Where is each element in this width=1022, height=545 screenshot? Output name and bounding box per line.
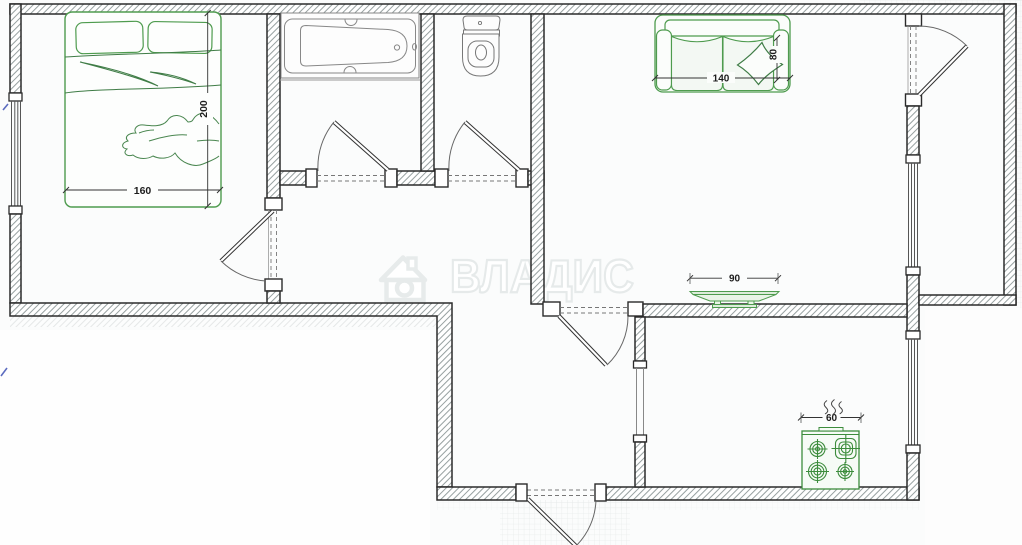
svg-text:140: 140	[713, 74, 730, 85]
svg-text:90: 90	[729, 274, 741, 285]
svg-text:160: 160	[134, 185, 152, 197]
svg-text:80: 80	[769, 49, 780, 61]
svg-text:60: 60	[826, 413, 838, 424]
svg-text:200: 200	[198, 100, 210, 118]
